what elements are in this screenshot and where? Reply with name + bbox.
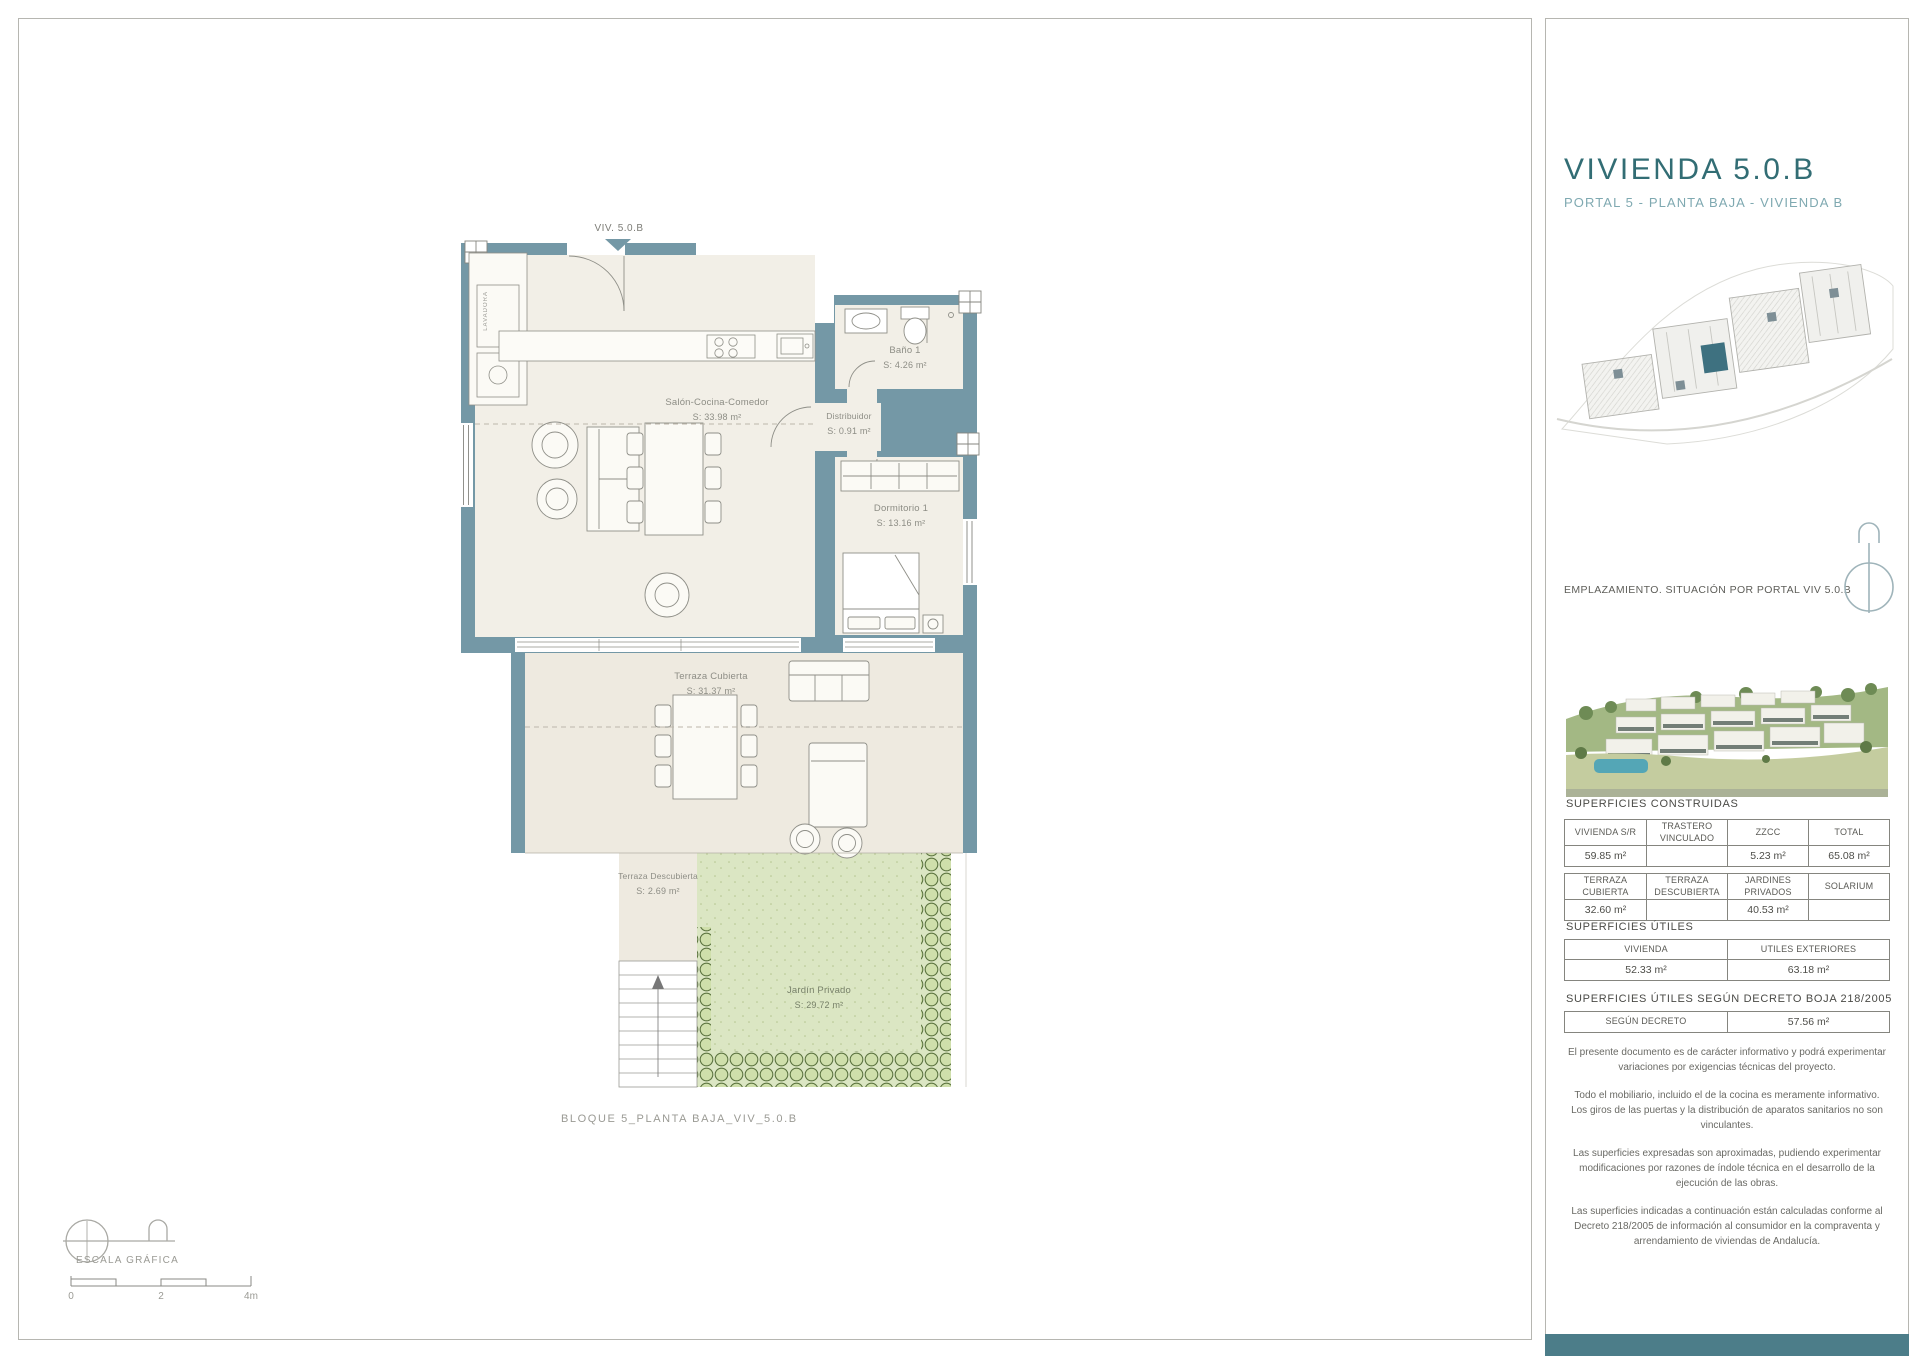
page-subtitle: PORTAL 5 - PLANTA BAJA - VIVIENDA B [1564, 195, 1843, 210]
floor-plan: VIV. 5.0.B LAVADORA Salón-Cocina-Comedor… [459, 227, 999, 1107]
table-header: TERRAZA DESCUBIERTA [1646, 874, 1727, 900]
disclaimer-paragraph: Las superficies expresadas son aproximad… [1568, 1146, 1886, 1191]
scale-tick-0: 0 [68, 1291, 74, 1302]
site-plan-drawing [1552, 224, 1902, 469]
laundry-closet [469, 253, 527, 405]
panel-north-compass-icon [1831, 517, 1901, 627]
room-label-terraza-cubierta: Terraza CubiertaS: 31.37 m² [674, 669, 747, 699]
table-value: 65.08 m² [1808, 846, 1889, 866]
aerial-render-image [1566, 647, 1888, 797]
plan-caption: BLOQUE 5_PLANTA BAJA_VIV_5.0.B [561, 1113, 798, 1125]
scale-bar [69, 1275, 259, 1291]
table-value: 32.60 m² [1565, 900, 1646, 920]
entry-label: VIV. 5.0.B [594, 223, 643, 234]
table-header: UTILES EXTERIORES [1727, 940, 1889, 960]
table-header: ZZCC [1727, 820, 1808, 846]
table-header: TRASTERO VINCULADO [1646, 820, 1727, 846]
scale-tick-4: 4m [244, 1291, 258, 1302]
disclaimer-paragraph: Todo el mobiliario, incluido el de la co… [1568, 1088, 1886, 1133]
room-label-terraza-descubierta: Terraza DescubiertaS: 2.69 m² [618, 869, 698, 899]
table-value [1808, 900, 1889, 920]
staircase [619, 961, 697, 1087]
superficies-construidas-tables: VIVIENDA S/R TRASTERO VINCULADO ZZCC TOT… [1564, 819, 1890, 921]
scale-tick-2: 2 [158, 1291, 164, 1302]
scale-label: ESCALA GRÁFICA [76, 1255, 179, 1266]
room-label-distribuidor: DistribuidorS: 0.91 m² [826, 409, 871, 439]
emplazamiento-label: EMPLAZAMIENTO. SITUACIÓN POR PORTAL VIV … [1564, 584, 1851, 596]
sliding-doors [515, 638, 935, 652]
table-header: SEGÚN DECRETO [1565, 1012, 1727, 1032]
construidas-table-1: VIVIENDA S/R TRASTERO VINCULADO ZZCC TOT… [1564, 819, 1890, 867]
footer-accent-bar [1545, 1334, 1909, 1356]
superficies-utiles-table: VIVIENDA UTILES EXTERIORES 52.33 m² 63.1… [1564, 939, 1890, 981]
kitchen-counter [499, 331, 815, 361]
page-title: VIVIENDA 5.0.B [1564, 153, 1816, 187]
table-header: TERRAZA CUBIERTA [1565, 874, 1646, 900]
table-value: 5.23 m² [1727, 846, 1808, 866]
heading-decreto: SUPERFICIES ÚTILES SEGÚN DECRETO BOJA 21… [1566, 993, 1892, 1005]
heading-superficies-utiles: SUPERFICIES ÚTILES [1566, 921, 1694, 933]
table-value [1646, 846, 1727, 866]
table-value [1646, 900, 1727, 920]
info-panel: VIVIENDA 5.0.B PORTAL 5 - PLANTA BAJA - … [1545, 18, 1909, 1340]
drawing-sheet: VIV. 5.0.B LAVADORA Salón-Cocina-Comedor… [18, 18, 1532, 1340]
entry-arrow-icon [605, 239, 631, 251]
page: { "sheet": { "entry_label": "VIV. 5.0.B"… [0, 0, 1919, 1356]
table-header: TOTAL [1808, 820, 1889, 846]
table-header: JARDINES PRIVADOS [1727, 874, 1808, 900]
decreto-table: SEGÚN DECRETO 57.56 m² [1564, 1011, 1890, 1033]
room-label-dormitorio: Dormitorio 1S: 13.16 m² [874, 501, 928, 531]
room-label-salon: Salón-Cocina-ComedorS: 33.98 m² [665, 395, 768, 425]
disclaimer-paragraph: Las superficies indicadas a continuación… [1568, 1204, 1886, 1249]
laundry-label: LAVADORA [483, 291, 489, 331]
room-label-bano: Baño 1S: 4.26 m² [883, 343, 927, 373]
disclaimer-text: El presente documento es de carácter inf… [1568, 1045, 1886, 1262]
disclaimer-paragraph: El presente documento es de carácter inf… [1568, 1045, 1886, 1075]
table-value: 57.56 m² [1727, 1012, 1889, 1032]
table-value: 63.18 m² [1727, 960, 1889, 980]
table-value: 40.53 m² [1727, 900, 1808, 920]
garden [697, 853, 966, 1087]
table-value: 59.85 m² [1565, 846, 1646, 866]
table-header: SOLARIUM [1808, 874, 1889, 900]
heading-superficies-construidas: SUPERFICIES CONSTRUIDAS [1566, 798, 1739, 810]
table-header: VIVIENDA [1565, 940, 1727, 960]
table-header: VIVIENDA S/R [1565, 820, 1646, 846]
construidas-table-2: TERRAZA CUBIERTA TERRAZA DESCUBIERTA JAR… [1564, 873, 1890, 921]
room-label-jardin: Jardín PrivadoS: 29.72 m² [787, 983, 851, 1013]
table-value: 52.33 m² [1565, 960, 1727, 980]
